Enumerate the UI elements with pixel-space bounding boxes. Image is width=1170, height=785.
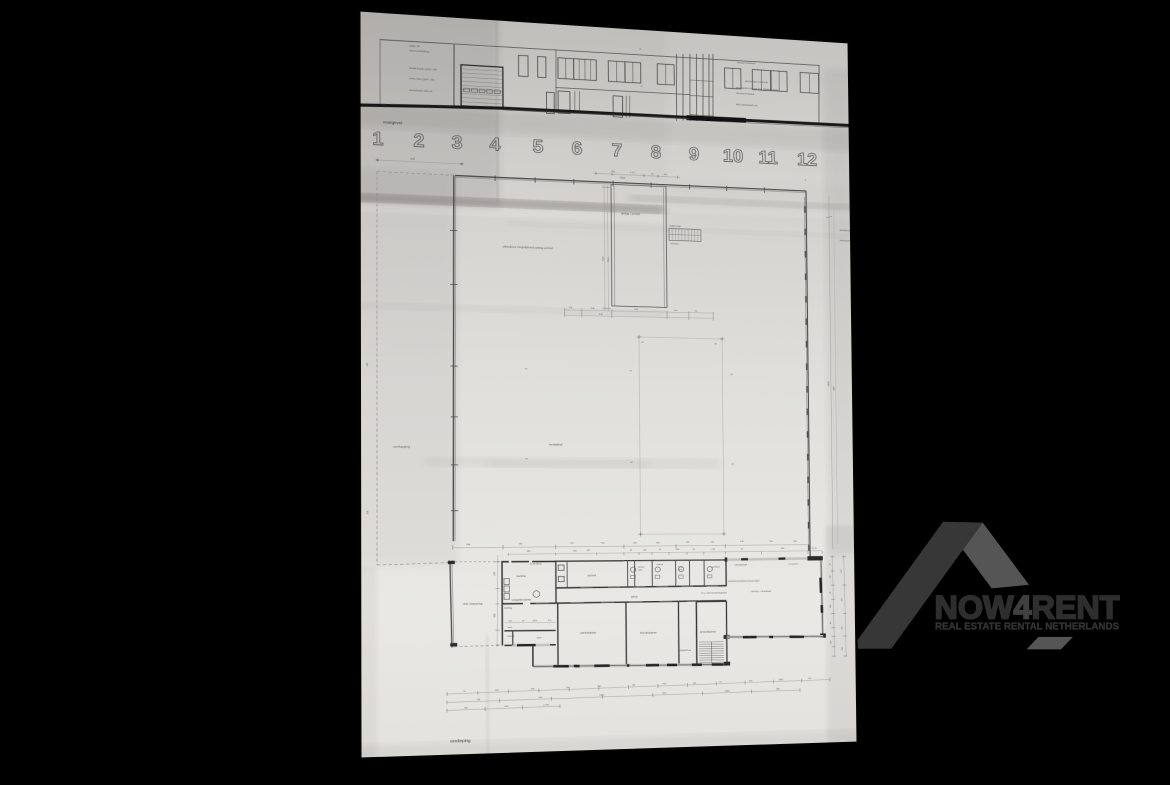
- svg-text:NOW4RENT: NOW4RENT: [935, 589, 1120, 625]
- svg-text:REAL ESTATE RENTAL NETHERLANDS: REAL ESTATE RENTAL NETHERLANDS: [935, 622, 1119, 633]
